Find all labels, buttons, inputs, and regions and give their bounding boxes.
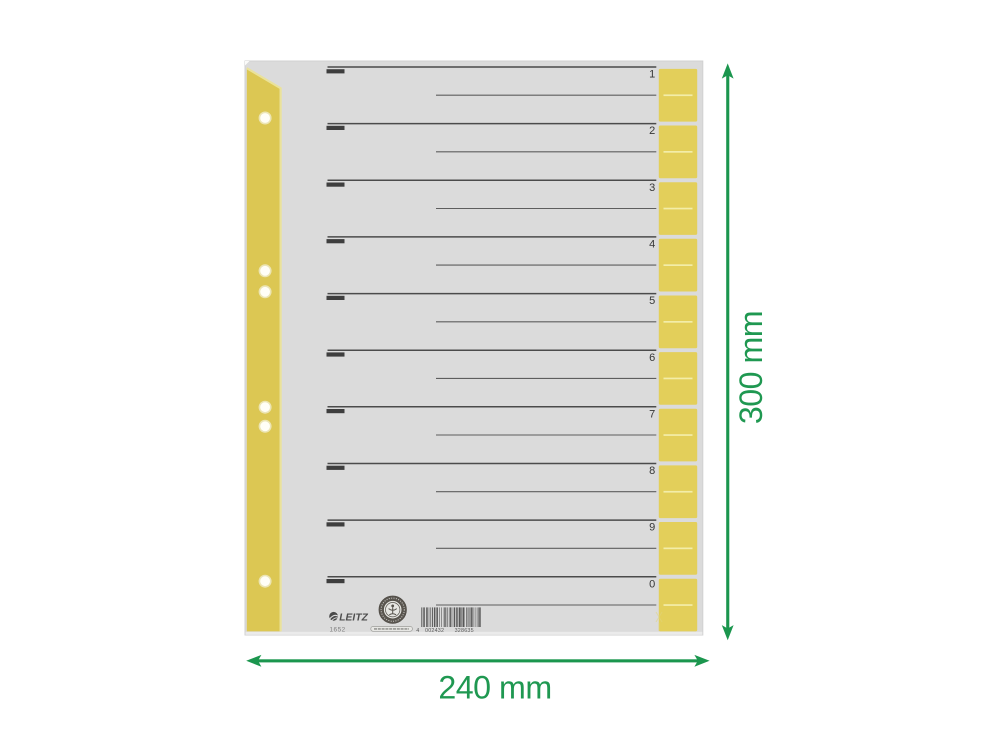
svg-text:300 mm: 300 mm bbox=[733, 311, 769, 424]
svg-text:240 mm: 240 mm bbox=[438, 670, 551, 706]
svg-text:0: 0 bbox=[649, 578, 655, 590]
svg-text:4: 4 bbox=[416, 628, 419, 634]
svg-text:328635: 328635 bbox=[455, 628, 474, 634]
svg-text:LEITZ: LEITZ bbox=[339, 613, 368, 624]
svg-text:7: 7 bbox=[649, 408, 655, 420]
svg-text:2: 2 bbox=[649, 125, 655, 137]
svg-text:3: 3 bbox=[649, 182, 655, 194]
svg-text:4: 4 bbox=[649, 239, 655, 251]
svg-text:6: 6 bbox=[649, 352, 655, 364]
svg-text:5: 5 bbox=[649, 295, 655, 307]
svg-text:9: 9 bbox=[649, 522, 655, 534]
svg-text:1652: 1652 bbox=[330, 627, 346, 634]
svg-text:002432: 002432 bbox=[425, 628, 444, 634]
svg-text:8: 8 bbox=[649, 465, 655, 477]
svg-text:1: 1 bbox=[649, 69, 655, 81]
